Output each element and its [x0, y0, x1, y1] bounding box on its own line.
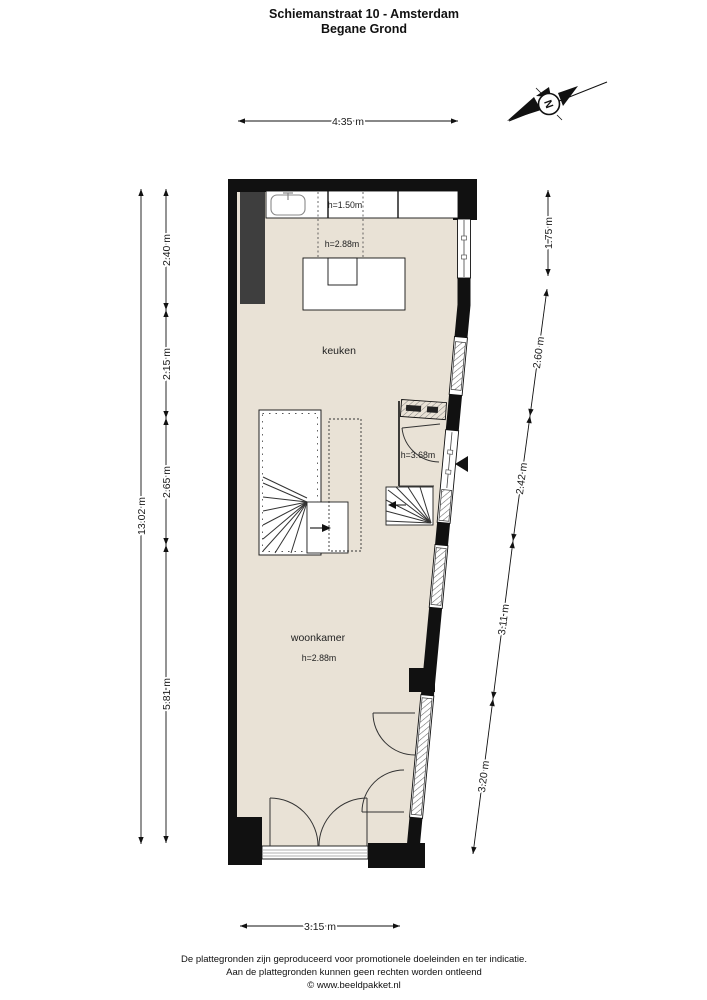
dim-left-seg1: 2.40 m — [161, 234, 173, 266]
kitchen-height-label: h=2.88m — [325, 239, 359, 249]
kitchen-island — [303, 258, 405, 310]
dim-left-total-label: 13.02 m — [136, 497, 148, 535]
footer-line2: Aan de plattegronden kunnen geen rechten… — [226, 967, 482, 978]
bottom-door-sill — [262, 846, 368, 859]
kitchen-label: keuken — [322, 345, 356, 357]
footer-disclaimer: De plattegronden zijn geproduceerd voor … — [181, 954, 527, 991]
page-subtitle: Begane Grond — [321, 22, 407, 36]
dimension-left-segments: 2.40 m 2.15 m 2.65 m 5.81 m — [161, 189, 173, 843]
livingroom-label: woonkamer — [290, 632, 346, 644]
entry-steps — [386, 487, 433, 525]
dim-right-seg2: 2.42 m — [514, 462, 530, 496]
dimension-left-total: 13.02 m — [136, 189, 148, 844]
dim-right-seg4: 3.20 m — [476, 760, 492, 794]
entry-height-label: h=3.68m — [401, 450, 435, 460]
window-top-right — [458, 219, 471, 278]
kitchen-tall-unit — [240, 192, 265, 304]
dim-bottom-label: 3.15 m — [304, 921, 336, 933]
dim-right-seg1: 2.60 m — [531, 336, 547, 370]
footer-credit: © www.beeldpakket.nl — [307, 980, 401, 991]
livingroom-height-label: h=2.88m — [302, 653, 336, 663]
dimension-right-slanted: 2.60 m 2.42 m 3.11 m 3.20 m — [473, 289, 547, 854]
dimension-top: 4.35 m — [238, 116, 458, 128]
dim-left-seg3: 2.65 m — [161, 466, 173, 498]
page-title: Schiemanstraat 10 - Amsterdam — [269, 7, 459, 21]
entrance-arrow-icon — [455, 456, 468, 472]
compass-north-icon: N — [507, 82, 607, 121]
floorplan-page: Schiemanstraat 10 - Amsterdam Begane Gro… — [0, 0, 707, 1000]
sink-icon — [271, 193, 305, 215]
counter-height-label: h=1.50m — [328, 200, 362, 210]
dim-left-seg4: 5.81 m — [161, 678, 173, 710]
dim-left-seg2: 2.15 m — [161, 348, 173, 380]
title-block: Schiemanstraat 10 - Amsterdam Begane Gro… — [269, 7, 459, 36]
dim-top-label: 4.35 m — [332, 116, 364, 128]
dim-right-seg3: 3.11 m — [496, 603, 512, 636]
dimension-right-top: 1.75 m — [543, 190, 555, 276]
dimension-bottom: 3.15 m — [240, 921, 400, 933]
dim-right-top-label: 1.75 m — [543, 217, 555, 249]
meter-cupboard — [400, 399, 446, 419]
floorplan-drawing: Schiemanstraat 10 - Amsterdam Begane Gro… — [0, 0, 707, 1000]
footer-line1: De plattegronden zijn geproduceerd voor … — [181, 954, 527, 965]
